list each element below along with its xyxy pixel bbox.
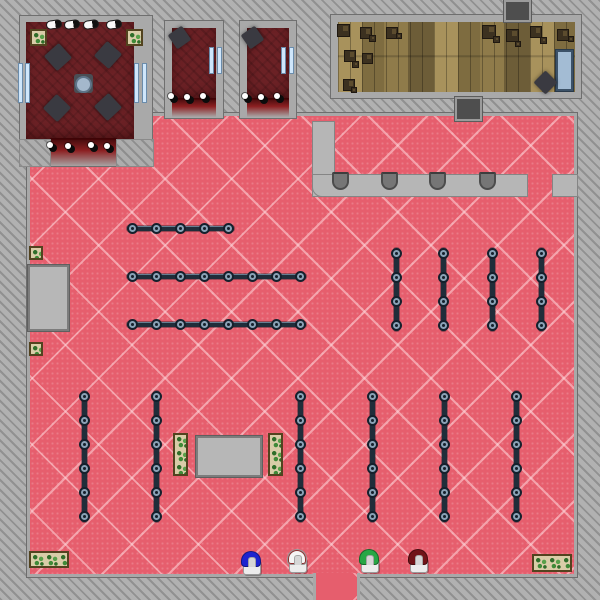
rack-hook[interactable]: [271, 319, 282, 330]
rack-hook[interactable]: [199, 319, 210, 330]
rack-hook[interactable]: [295, 271, 306, 282]
clothing-rack-vertical[interactable]: [370, 391, 375, 522]
rack-hook[interactable]: [151, 391, 162, 402]
rack-hook[interactable]: [223, 223, 234, 234]
rack-hook[interactable]: [271, 271, 282, 282]
spotlight: [104, 143, 114, 153]
rack-hook[interactable]: [151, 319, 162, 330]
rack-hook[interactable]: [438, 320, 449, 331]
spotlight: [200, 93, 210, 103]
mannequin-hood: [408, 549, 428, 565]
counter-stool[interactable]: [332, 172, 349, 190]
rack-hook[interactable]: [511, 439, 522, 450]
crate[interactable]: [540, 37, 547, 44]
spotlight: [47, 142, 57, 152]
clothing-rack-vertical[interactable]: [441, 248, 446, 331]
rack-hook[interactable]: [295, 415, 306, 426]
rack-hook[interactable]: [151, 463, 162, 474]
rack-hook[interactable]: [438, 272, 449, 283]
lounge-corner-block: [20, 140, 50, 166]
rack-hook[interactable]: [511, 391, 522, 402]
clothing-rack-vertical[interactable]: [394, 248, 399, 331]
rack-hook[interactable]: [295, 439, 306, 450]
planter-box: [268, 433, 283, 476]
planter-tile: [29, 246, 43, 260]
spotlight: [65, 143, 75, 153]
rack-hook[interactable]: [79, 511, 90, 522]
rack-hook[interactable]: [487, 248, 498, 259]
rack-hook[interactable]: [487, 320, 498, 331]
rack-hook[interactable]: [127, 271, 138, 282]
rack-hook[interactable]: [247, 319, 258, 330]
spotlight: [88, 142, 98, 152]
mannequin-hood: [241, 551, 261, 567]
rack-hook[interactable]: [536, 320, 547, 331]
crate[interactable]: [352, 61, 359, 68]
rack-hook[interactable]: [151, 271, 162, 282]
mannequin-blue[interactable]: [240, 551, 262, 575]
window: [18, 64, 30, 102]
rack-hook[interactable]: [487, 296, 498, 307]
rack-hook[interactable]: [511, 463, 522, 474]
crate[interactable]: [337, 24, 350, 37]
rack-hook[interactable]: [79, 391, 90, 402]
rack-hook[interactable]: [367, 511, 378, 522]
rack-hook[interactable]: [536, 296, 547, 307]
rack-hook[interactable]: [391, 248, 402, 259]
rack-hook[interactable]: [438, 296, 449, 307]
display-table-blue[interactable]: [556, 50, 573, 91]
clothing-rack-vertical[interactable]: [298, 391, 303, 522]
crate[interactable]: [493, 36, 500, 43]
lounge-corner-block: [117, 140, 153, 166]
spotlight: [184, 94, 194, 104]
planter-box: [29, 551, 69, 568]
mannequin-hood: [359, 549, 379, 565]
window: [281, 48, 294, 73]
clothing-rack-horizontal[interactable]: [127, 226, 234, 231]
rack-hook[interactable]: [79, 439, 90, 450]
window: [134, 64, 147, 102]
rack-hook[interactable]: [151, 487, 162, 498]
rack-hook[interactable]: [127, 319, 138, 330]
clothing-rack-vertical[interactable]: [490, 248, 495, 331]
service-counter[interactable]: [28, 265, 69, 331]
entrance-floor[interactable]: [313, 573, 360, 600]
planter-tile: [29, 342, 43, 356]
mannequin-red[interactable]: [407, 549, 429, 573]
rack-hook[interactable]: [439, 415, 450, 426]
rack-hook[interactable]: [151, 511, 162, 522]
rack-hook[interactable]: [79, 415, 90, 426]
clothing-rack-vertical[interactable]: [154, 391, 159, 522]
rack-hook[interactable]: [367, 391, 378, 402]
rack-hook[interactable]: [295, 391, 306, 402]
rack-hook[interactable]: [247, 271, 258, 282]
rack-hook[interactable]: [199, 271, 210, 282]
rack-hook[interactable]: [511, 487, 522, 498]
mannequin-hood: [287, 549, 307, 565]
vent-duct: [504, 0, 531, 22]
planter-tile: [126, 29, 143, 46]
rack-hook[interactable]: [175, 223, 186, 234]
counter-stool[interactable]: [429, 172, 446, 190]
rack-hook[interactable]: [439, 511, 450, 522]
rack-hook[interactable]: [223, 271, 234, 282]
rack-hook[interactable]: [367, 439, 378, 450]
rack-hook[interactable]: [487, 272, 498, 283]
checkout-counter-end[interactable]: [553, 175, 577, 196]
rack-hook[interactable]: [151, 223, 162, 234]
rack-hook[interactable]: [199, 223, 210, 234]
rack-hook[interactable]: [439, 391, 450, 402]
counter-stool[interactable]: [479, 172, 496, 190]
clothing-rack-horizontal[interactable]: [127, 274, 306, 279]
crate[interactable]: [396, 33, 402, 39]
rack-hook[interactable]: [391, 296, 402, 307]
rack-hook[interactable]: [295, 319, 306, 330]
crate[interactable]: [568, 36, 574, 42]
rack-hook[interactable]: [391, 320, 402, 331]
rack-hook[interactable]: [367, 463, 378, 474]
planter-box: [532, 554, 572, 572]
rack-hook[interactable]: [79, 487, 90, 498]
rack-hook[interactable]: [175, 319, 186, 330]
rack-hook[interactable]: [151, 415, 162, 426]
rack-hook[interactable]: [295, 487, 306, 498]
clothing-rack-horizontal[interactable]: [127, 322, 306, 327]
lounge-round-seat[interactable]: [75, 76, 92, 93]
rack-hook[interactable]: [511, 511, 522, 522]
display-table[interactable]: [196, 436, 262, 477]
mannequin-white[interactable]: [286, 549, 308, 573]
crate[interactable]: [369, 35, 376, 42]
spotlight: [258, 94, 268, 104]
clothing-rack-vertical[interactable]: [82, 391, 87, 522]
rack-hook[interactable]: [536, 272, 547, 283]
spotlight: [242, 93, 252, 103]
store-map: [0, 0, 600, 600]
rack-hook[interactable]: [391, 272, 402, 283]
rack-hook[interactable]: [439, 487, 450, 498]
rack-hook[interactable]: [127, 223, 138, 234]
rack-hook[interactable]: [175, 271, 186, 282]
rack-hook[interactable]: [295, 511, 306, 522]
rack-hook[interactable]: [367, 415, 378, 426]
rack-hook[interactable]: [223, 319, 234, 330]
planter-tile: [30, 29, 47, 46]
crate[interactable]: [515, 41, 521, 47]
rack-hook[interactable]: [295, 463, 306, 474]
clothing-rack-vertical[interactable]: [514, 391, 519, 522]
spotlight: [168, 93, 178, 103]
planter-box: [173, 433, 188, 476]
crate[interactable]: [351, 87, 357, 93]
counter-stool[interactable]: [381, 172, 398, 190]
vent-duct: [455, 97, 482, 121]
rack-hook[interactable]: [79, 463, 90, 474]
crate[interactable]: [362, 53, 373, 64]
clothing-rack-vertical[interactable]: [442, 391, 447, 522]
clothing-rack-vertical[interactable]: [539, 248, 544, 331]
mannequin-green[interactable]: [358, 549, 380, 573]
rack-hook[interactable]: [151, 439, 162, 450]
spotlight: [274, 93, 284, 103]
window: [209, 48, 222, 73]
rack-hook[interactable]: [439, 439, 450, 450]
rack-hook[interactable]: [536, 248, 547, 259]
rack-hook[interactable]: [511, 415, 522, 426]
rack-hook[interactable]: [367, 487, 378, 498]
rack-hook[interactable]: [438, 248, 449, 259]
rack-hook[interactable]: [439, 463, 450, 474]
